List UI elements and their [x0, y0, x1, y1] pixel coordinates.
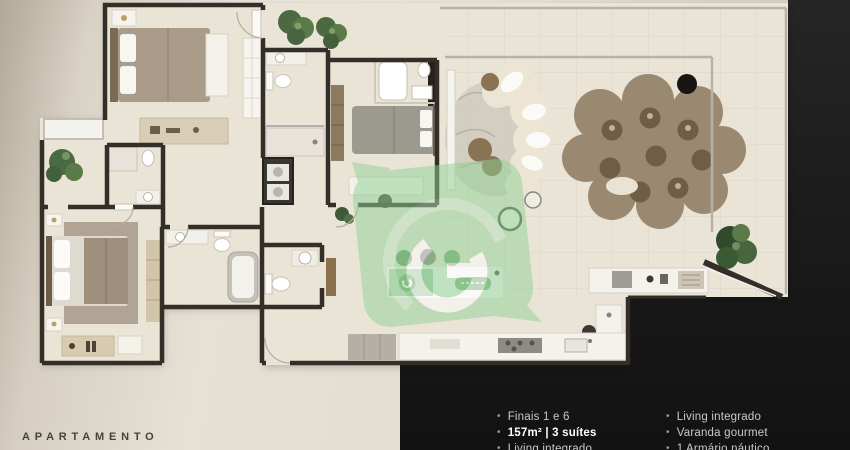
gourmet-counter	[589, 268, 708, 293]
floorplan-screenshot: APARTAMENTO •Finais 1 e 6 •157m² | 3 suí…	[0, 0, 850, 450]
watermark-logo	[350, 157, 542, 344]
fridge-cabinets	[348, 334, 396, 360]
open-door	[326, 258, 336, 296]
wardrobe	[331, 85, 344, 161]
headboard	[46, 236, 52, 306]
sink	[412, 86, 432, 99]
basin	[299, 252, 311, 264]
toilet	[275, 75, 291, 88]
bathtub	[379, 62, 407, 100]
black-round-table	[677, 74, 697, 94]
rug-cushion	[606, 177, 638, 195]
side-table	[525, 192, 541, 208]
toilet	[214, 239, 230, 252]
bed-bench	[206, 34, 228, 96]
plan-caption: APARTAMENTO	[22, 431, 159, 443]
tall-wardrobe	[146, 240, 160, 322]
kitchen-sink	[565, 339, 587, 352]
balcony-planter	[44, 119, 103, 139]
door-leaf	[252, 10, 261, 38]
apartment-floorplan	[0, 0, 850, 450]
toilet	[418, 63, 430, 78]
laundry-closet	[263, 158, 293, 204]
headboard	[110, 28, 118, 102]
door-leaf	[114, 204, 134, 210]
toilet	[272, 277, 290, 291]
